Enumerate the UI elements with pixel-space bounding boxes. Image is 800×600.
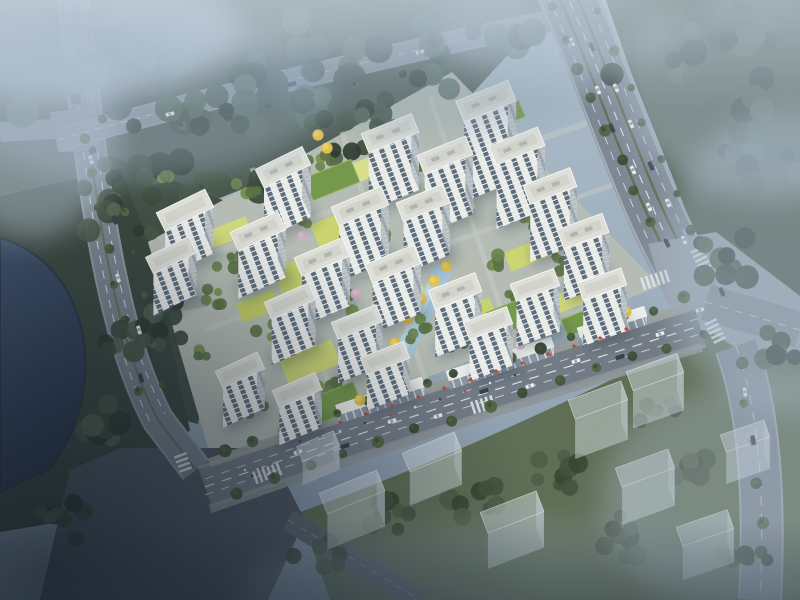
aerial-residential-render [0,0,800,600]
aerial-render-stage [0,0,800,600]
fog-overlays [0,0,800,600]
